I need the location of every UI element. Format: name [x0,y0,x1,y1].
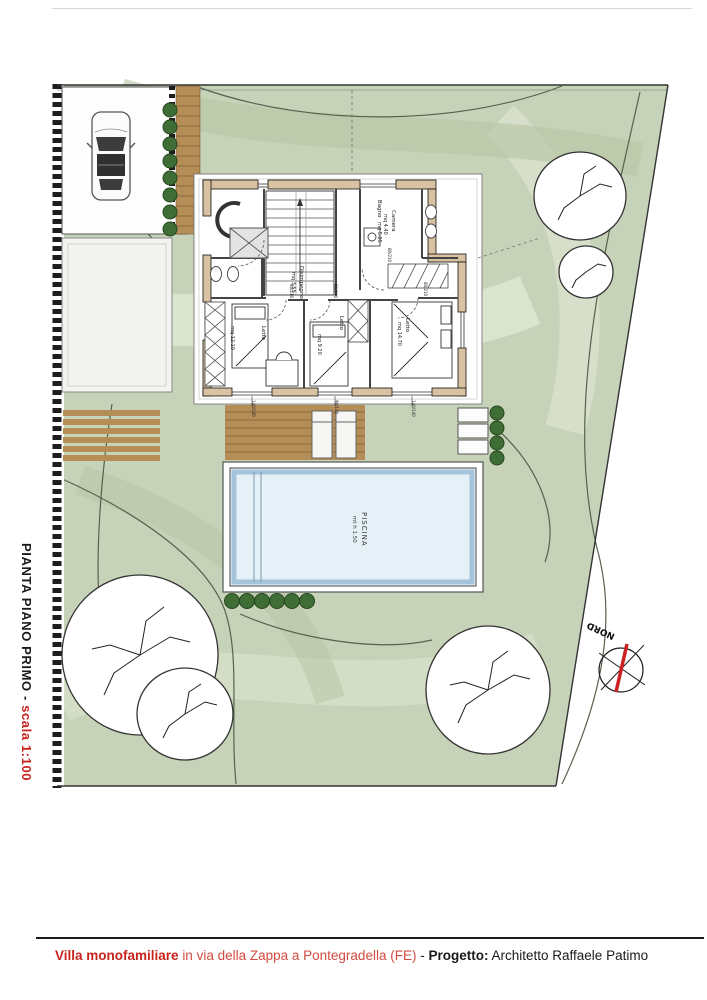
room-area-bagno: mq 5.05 [376,222,382,243]
footer-separator: - [420,948,425,963]
site-plan-drawing: PISCINA mt h 1.50 [0,0,707,1000]
footer-progetto-label: Progetto: [428,948,488,963]
drawing-title-vertical: PIANTA PIANO PRIMO - scala 1:100 [19,543,34,781]
room-label-camera: Camera [390,210,396,232]
footer-project-location: in via della Zappa a Pontegradella (FE) [182,948,416,963]
swimming-pool: PISCINA mt h 1.50 [223,462,483,592]
skylight-x-panel [230,228,268,258]
room-label-letto2: Letto [338,316,344,331]
drawing-title-text: PIANTA PIANO PRIMO - [19,543,34,705]
door-dim: 80/210 [423,282,428,297]
tree [426,626,550,754]
door-dim: 80/210 [387,248,392,263]
compass-north-label: NORD [586,619,617,641]
footer-project-title: Villa monofamiliare [55,948,179,963]
tree [534,152,626,240]
pool-size-label: mt h 1.50 [351,516,357,543]
car-windshield [96,137,126,151]
car [87,112,135,200]
footer-caption: Villa monofamiliare in via della Zappa a… [55,948,695,963]
room-label-disimpegno: Disimpegno [298,266,304,299]
room-label-letto1: Letto [260,326,266,341]
door-dim: 80/210 [333,284,338,299]
garden-steps [458,408,488,454]
car-rear-window [99,179,123,190]
tree [137,668,233,760]
room-label-letto3: Letto [404,318,410,333]
pool-label: PISCINA [360,512,368,547]
desk [266,360,298,386]
room-area-letto2: mq 9.20 [316,334,322,355]
tree [559,246,613,298]
paved-terrace-pad [62,238,172,392]
footer-divider-line [36,937,704,939]
footer-architect-name: Architetto Raffaele Patimo [492,948,649,963]
compass-needle [616,644,627,692]
door-dim: 80/210 [289,284,294,299]
drawing-scale-text: scala 1:100 [19,705,34,781]
north-compass: NORD [586,619,645,692]
scanned-plan-page: PISCINA mt h 1.50 [0,0,707,1000]
room-label-bagno: Bagno [376,200,382,218]
room-area-letto1: mq 12.10 [229,326,235,350]
scan-artifact-line [52,8,692,9]
room-area-letto3: mq 14.70 [396,322,402,346]
